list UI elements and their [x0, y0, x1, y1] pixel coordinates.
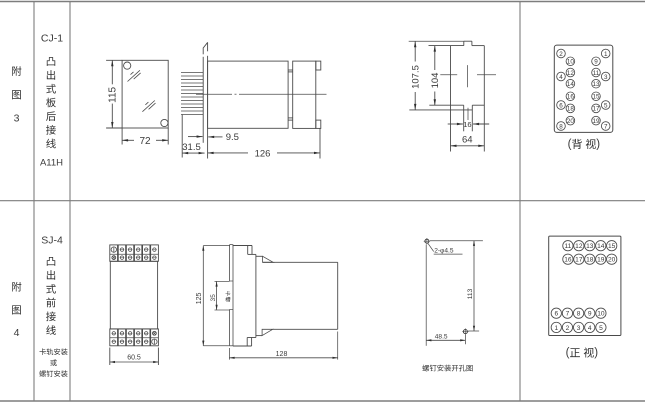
- svg-text:10: 10: [597, 311, 605, 318]
- svg-text:10: 10: [567, 59, 575, 66]
- svg-text:14: 14: [567, 81, 575, 88]
- svg-text:5: 5: [599, 325, 603, 332]
- svg-text:19: 19: [597, 257, 605, 264]
- svg-text:60.5: 60.5: [127, 354, 141, 361]
- svg-text:13: 13: [592, 81, 600, 88]
- svg-text:17: 17: [575, 257, 583, 264]
- svg-text:16: 16: [564, 257, 572, 264]
- svg-text:8: 8: [559, 123, 563, 130]
- svg-text:125: 125: [196, 292, 203, 304]
- svg-text:6: 6: [554, 311, 558, 318]
- svg-text:20: 20: [567, 118, 575, 125]
- svg-text:9.5: 9.5: [226, 132, 239, 143]
- svg-text:115: 115: [108, 86, 119, 102]
- svg-text:1: 1: [554, 325, 558, 332]
- svg-text:72: 72: [139, 136, 151, 147]
- svg-text:20: 20: [608, 257, 616, 264]
- svg-text:126: 126: [255, 149, 271, 160]
- svg-text:7: 7: [566, 311, 570, 318]
- svg-text:2-φ4.5: 2-φ4.5: [434, 248, 454, 255]
- svg-text:8: 8: [577, 311, 581, 318]
- svg-text:11: 11: [564, 243, 571, 250]
- svg-text:(: (: [568, 139, 572, 151]
- svg-text:64: 64: [462, 135, 473, 146]
- svg-text:107.5: 107.5: [411, 65, 422, 89]
- svg-text:48.5: 48.5: [435, 334, 448, 341]
- svg-text:5: 5: [604, 102, 608, 109]
- svg-text:A11H: A11H: [40, 157, 63, 168]
- svg-text:2: 2: [566, 325, 570, 332]
- svg-text:CJ-1: CJ-1: [41, 33, 63, 45]
- svg-text:9: 9: [588, 311, 592, 318]
- svg-text:7: 7: [604, 123, 608, 130]
- svg-text:19: 19: [592, 118, 600, 125]
- svg-text:): ): [596, 139, 600, 151]
- svg-text:): ): [594, 347, 598, 359]
- svg-text:11: 11: [593, 70, 600, 77]
- svg-text:35: 35: [210, 294, 217, 302]
- svg-text:3: 3: [577, 325, 581, 332]
- svg-text:31.5: 31.5: [182, 142, 201, 153]
- svg-text:15: 15: [592, 94, 600, 101]
- svg-text:104: 104: [430, 73, 441, 89]
- svg-text:13: 13: [586, 243, 594, 250]
- svg-text:3: 3: [604, 74, 608, 81]
- svg-text:18: 18: [586, 257, 594, 264]
- svg-text:6: 6: [559, 102, 563, 109]
- svg-text:14: 14: [597, 243, 605, 250]
- svg-text:17: 17: [592, 106, 600, 113]
- svg-text:18: 18: [567, 106, 575, 113]
- svg-text:128: 128: [276, 351, 288, 358]
- svg-text:113: 113: [467, 288, 474, 299]
- svg-text:9: 9: [594, 59, 598, 66]
- svg-text:4: 4: [588, 325, 592, 332]
- svg-text:12: 12: [567, 70, 575, 77]
- svg-text:12: 12: [575, 243, 583, 250]
- svg-text:(: (: [566, 347, 570, 359]
- svg-text:3: 3: [14, 113, 20, 125]
- svg-text:2: 2: [559, 51, 563, 58]
- svg-text:4: 4: [559, 74, 563, 81]
- svg-text:16: 16: [567, 94, 575, 101]
- svg-text:15: 15: [608, 243, 616, 250]
- svg-text:16: 16: [463, 120, 471, 129]
- svg-text:SJ-4: SJ-4: [41, 235, 63, 247]
- svg-text:1: 1: [604, 51, 608, 58]
- svg-text:4: 4: [14, 327, 20, 339]
